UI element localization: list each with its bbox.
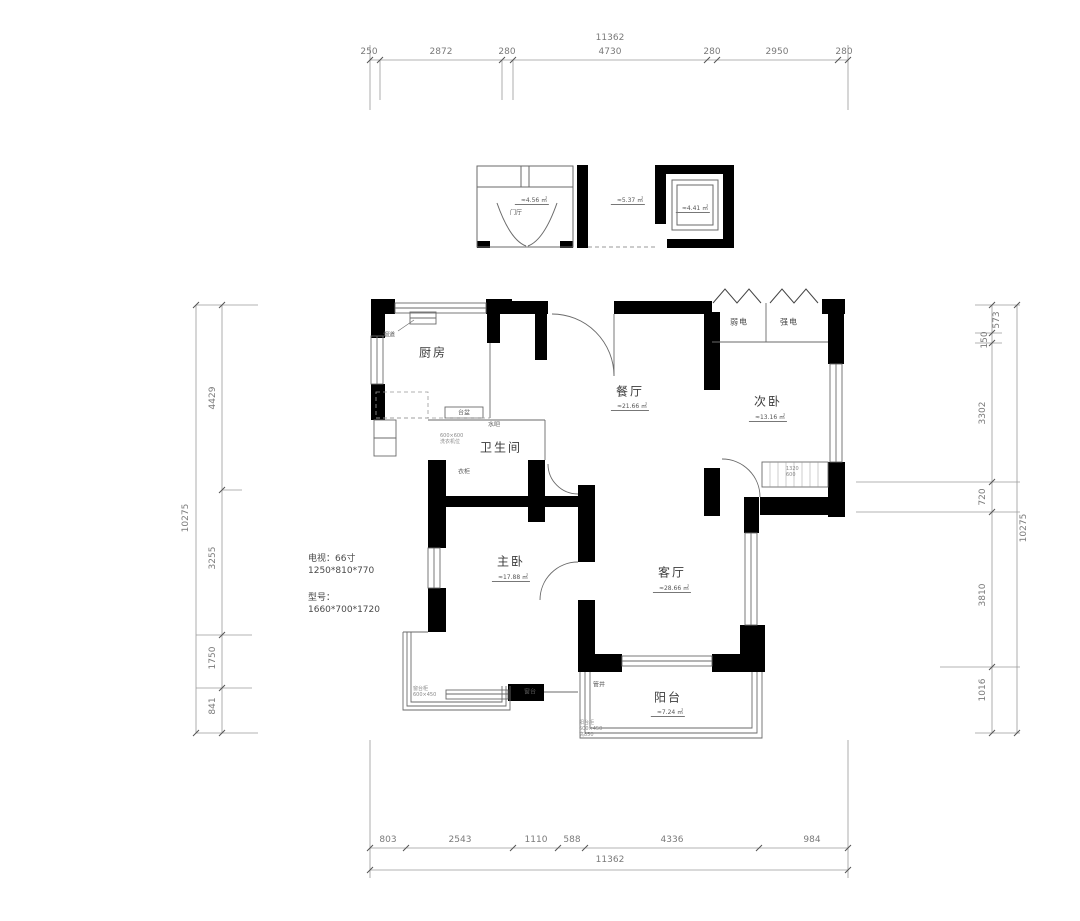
dim-left-seg: 4429	[208, 387, 218, 410]
dim-left-seg: 841	[208, 697, 218, 714]
dim-bottom-seg: 588	[563, 835, 580, 845]
dim-right-seg: 573	[992, 311, 1002, 328]
dim-top-seg: 280	[703, 47, 720, 57]
dimension-lines	[196, 45, 1020, 878]
dim-left-seg: 3255	[208, 547, 218, 570]
room-area-entry: ≈4.56 ㎡	[515, 195, 549, 205]
room-label-living: 客厅	[658, 564, 686, 581]
room-label-kitchen: 厨房	[419, 344, 447, 361]
closet-label-strong: 强电	[780, 317, 798, 328]
sill-label: 窗台	[524, 687, 536, 696]
door-arcs	[540, 314, 760, 600]
dim-bottom-seg: 984	[803, 835, 820, 845]
room-label-entry: 门厅	[510, 208, 522, 217]
tv-annotation: 电视：66寸 1250*810*770	[308, 553, 374, 577]
dim-right-seg: 720	[978, 488, 988, 505]
dim-right-seg: 1016	[978, 679, 988, 702]
dim-bottom-seg: 2543	[449, 835, 472, 845]
basin-label: 台盆	[458, 408, 470, 417]
bay-note: 窗台柜 600×450	[413, 686, 436, 698]
dim-right-seg: 3302	[978, 402, 988, 425]
room-area-master: ≈17.88 ㎡	[492, 572, 530, 582]
folding-doors	[713, 289, 818, 303]
room-area-living: ≈28.66 ㎡	[653, 583, 691, 593]
washer-note: 600×600 洗衣机位	[440, 433, 463, 445]
model-dims: 1660*700*1720	[308, 604, 380, 616]
duct-label: 管井	[593, 680, 605, 689]
dim-bottom-seg: 803	[379, 835, 396, 845]
model-annotation: 型号： 1660*700*1720	[308, 592, 380, 616]
dim-top-seg: 280	[835, 47, 852, 57]
flue-label: 烟道	[383, 330, 395, 339]
room-label-master: 主卧	[497, 553, 525, 570]
model-label: 型号：	[308, 592, 380, 604]
dim-right-seg: 150	[980, 331, 990, 348]
dim-top-seg: 250	[360, 47, 377, 57]
dim-right-total: 10275	[1019, 514, 1029, 543]
balcony-note: 阳台柜 600×450 高850	[579, 720, 602, 738]
wardrobe-small-label: 衣柜	[458, 467, 470, 476]
dim-bottom-total: 11362	[596, 855, 625, 865]
dim-left-total: 10275	[181, 504, 191, 533]
room-area-balcony: ≈7.24 ㎡	[651, 707, 685, 717]
dim-top-seg: 2950	[766, 47, 789, 57]
room-label-balcony: 阳台	[654, 689, 682, 706]
room-area-bedroom2: ≈13.16 ㎡	[749, 412, 787, 422]
dim-right-seg: 3810	[978, 584, 988, 607]
floor-plan-canvas: 11362 250 2872 280 4730 280 2950 280 803…	[0, 0, 1080, 921]
tv-dims: 1250*810*770	[308, 565, 374, 577]
room-label-bedroom2: 次卧	[754, 393, 782, 410]
room-area-corridor: ≈5.37 ㎡	[611, 195, 645, 205]
dim-top-seg: 280	[498, 47, 515, 57]
dim-top-seg: 4730	[599, 47, 622, 57]
room-area-elevator: ≈4.41 ㎡	[676, 203, 710, 213]
dim-top-total: 11362	[596, 33, 625, 43]
plan-geometry	[0, 0, 1080, 921]
closet-label-weak: 弱电	[730, 317, 748, 328]
wardrobe-dims: 1320 600	[786, 466, 799, 478]
tv-size: 电视：66寸	[308, 553, 374, 565]
room-area-dining: ≈21.66 ㎡	[611, 401, 649, 411]
dim-bottom-seg: 1110	[525, 835, 548, 845]
dim-left-seg: 1750	[208, 647, 218, 670]
dimension-ticks	[193, 57, 1020, 873]
room-label-dining: 餐厅	[616, 383, 644, 400]
dim-bottom-seg: 4336	[661, 835, 684, 845]
dim-top-seg: 2872	[430, 47, 453, 57]
counter-dashed	[376, 392, 490, 418]
room-label-bathroom: 卫生间	[480, 439, 522, 456]
waterbar-label: 水吧	[488, 420, 500, 429]
